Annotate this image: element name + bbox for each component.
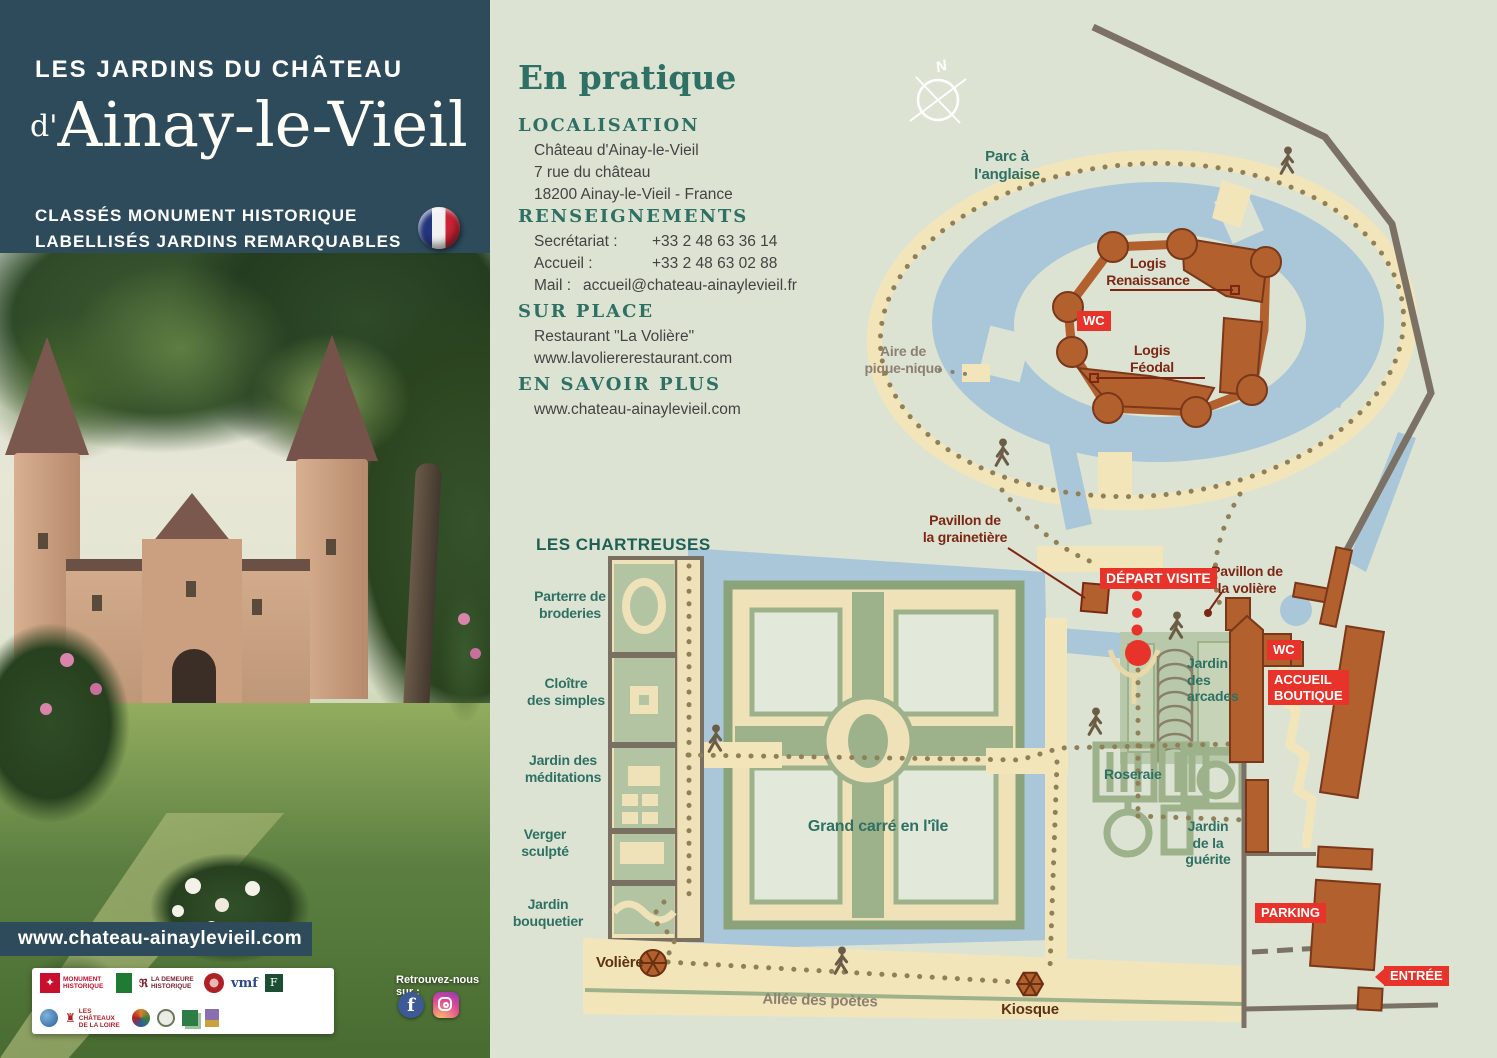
parcs-jardins-logo xyxy=(182,1010,198,1026)
website-banner[interactable]: www.chateau-ainaylevieil.com xyxy=(0,922,312,956)
long-building xyxy=(1320,626,1384,798)
kiosque-icon xyxy=(1017,973,1043,996)
chateaux-loire-logo: ♜ LES CHÂTEAUX DE LA LOIRE xyxy=(65,1008,125,1029)
voliere-icon xyxy=(640,950,666,976)
map-label-parc-anglaise: Parc àl'anglaise xyxy=(974,148,1040,183)
entree-badge: ENTRÉE xyxy=(1384,966,1449,986)
compass-icon xyxy=(910,77,966,123)
route-logo xyxy=(40,1009,58,1027)
map-label-bouquetier: Jardinbouquetier xyxy=(513,896,583,929)
vmf-logo: vmf xyxy=(231,976,258,991)
en-savoir-plus-details: www.chateau-ainaylevieil.com xyxy=(534,399,741,421)
restaurant-url[interactable]: www.lavoliererestaurant.com xyxy=(534,348,732,370)
map-label-allee-poetes: Allée des poètes xyxy=(762,990,878,1011)
facebook-icon[interactable]: f xyxy=(398,992,424,1018)
berry-logo xyxy=(132,1009,150,1027)
jardin-remarquable-logo xyxy=(116,973,132,993)
moat xyxy=(932,182,1384,462)
email-address[interactable]: accueil@chateau-ainaylevieil.fr xyxy=(583,275,797,297)
brochure-page: N Parc àl'anglaise LogisRenaissance Logi… xyxy=(0,0,1497,1058)
panel-header: LES JARDINS DU CHÂTEAU d'Ainay-le-Vieil … xyxy=(0,0,490,253)
parking-badge: PARKING xyxy=(1255,903,1326,923)
depart-visite-dot xyxy=(1125,640,1151,666)
map-label-pavillon-voliere: Pavillon dela volière xyxy=(1211,563,1283,596)
map-label-cloitre: Cloîtredes simples xyxy=(527,675,605,708)
rhs-logo xyxy=(157,1009,175,1027)
lavande-logo xyxy=(205,1009,219,1027)
map-label-roseraie: Roseraie xyxy=(1104,766,1162,783)
fondation-logo: F xyxy=(265,974,283,992)
heading-localisation: LOCALISATION xyxy=(518,115,700,136)
localisation-address: Château d'Ainay-le-Vieil 7 rue du châtea… xyxy=(534,140,733,206)
demeure-historique-logo: ℜ LA DEMEURE HISTORIQUE xyxy=(139,976,197,990)
wc-badge-chateau: WC xyxy=(1077,311,1111,331)
title-main: d'Ainay-le-Vieil xyxy=(30,88,468,161)
map-label-kiosque: Kiosque xyxy=(1001,1001,1059,1019)
instagram-icon[interactable] xyxy=(433,992,459,1018)
parking-building xyxy=(1310,880,1380,970)
map-label-logis-feodal: LogisFéodal xyxy=(1130,342,1174,375)
heading-renseignements: RENSEIGNEMENTS xyxy=(518,206,748,227)
map-label-aire-pique-nique: Aire depique-nique xyxy=(864,343,941,376)
sur-place-details: Restaurant "La Volière" www.lavoliereres… xyxy=(534,326,732,370)
renseignements-details: Secrétariat :+33 2 48 63 36 14 Accueil :… xyxy=(534,231,797,297)
subtitle: CLASSÉS MONUMENT HISTORIQUE LABELLISÉS J… xyxy=(35,203,401,256)
left-panel: LES JARDINS DU CHÂTEAU d'Ainay-le-Vieil … xyxy=(0,0,490,1058)
accueil-boutique-badge: ACCUEILBOUTIQUE xyxy=(1268,670,1349,705)
wc-badge-entrance: WC xyxy=(1267,640,1301,660)
depart-visite-badge: DÉPART VISITE xyxy=(1100,568,1217,589)
medallion-logo xyxy=(204,973,224,993)
map-label-guerite: Jardinde laguérite xyxy=(1185,818,1230,868)
website-url[interactable]: www.chateau-ainaylevieil.com xyxy=(534,399,741,421)
title-line1: LES JARDINS DU CHÂTEAU xyxy=(35,56,403,84)
map-label-parterre: Parterre debroderies xyxy=(534,588,606,621)
map-label-verger: Vergersculpté xyxy=(521,826,569,859)
partner-logo-strip: ✦ MONUMENT HISTORIQUE ℜ LA DEMEURE HISTO… xyxy=(32,968,334,1034)
map-label-logis-renaissance: LogisRenaissance xyxy=(1106,255,1189,288)
grand-carre-island xyxy=(678,585,1068,958)
map-label-grainetiere: Pavillon dela grainetière xyxy=(923,512,1007,545)
heading-sur-place: SUR PLACE xyxy=(518,301,654,322)
monument-historique-logo: ✦ MONUMENT HISTORIQUE xyxy=(40,973,109,993)
map-label-chartreuses: LES CHARTREUSES xyxy=(536,535,711,555)
map-label-voliere: Volière xyxy=(596,954,644,972)
info-title: En pratique xyxy=(518,58,736,97)
visit-route-red xyxy=(1125,591,1151,666)
french-flag-icon[interactable] xyxy=(418,207,460,249)
map-label-grand-carre: Grand carré en l'île xyxy=(808,818,948,837)
allee-des-poetes-path xyxy=(583,938,1244,1022)
map-label-arcades: Jardindesarcades xyxy=(1187,655,1239,705)
map-label-meditations: Jardin desméditations xyxy=(525,752,601,785)
heading-en-savoir-plus: EN SAVOIR PLUS xyxy=(518,374,721,395)
